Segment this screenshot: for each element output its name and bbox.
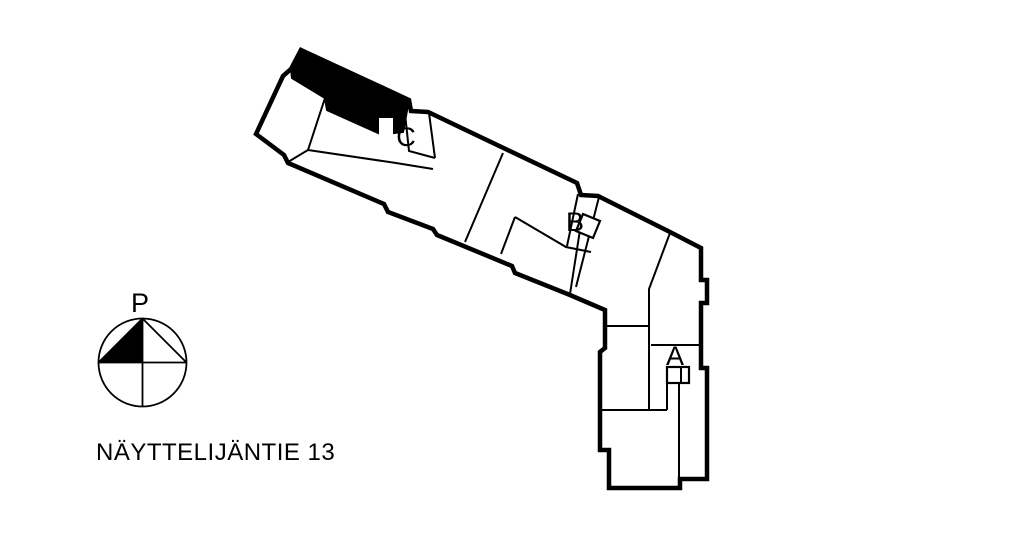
site-plan-page: C B A P NÄYTTELIJÄNTIE 13: [0, 0, 1024, 541]
building-outline: [256, 50, 707, 488]
floor-plan-canvas: C B A P NÄYTTELIJÄNTIE 13: [0, 0, 1024, 541]
compass-north-label: P: [131, 288, 149, 318]
compass-rose: P: [99, 288, 187, 407]
stairwell-label-b: B: [566, 207, 584, 237]
stairwell-label-a: A: [666, 341, 684, 371]
address-label: NÄYTTELIJÄNTIE 13: [96, 439, 335, 466]
stairwell-label-c: C: [396, 122, 416, 152]
